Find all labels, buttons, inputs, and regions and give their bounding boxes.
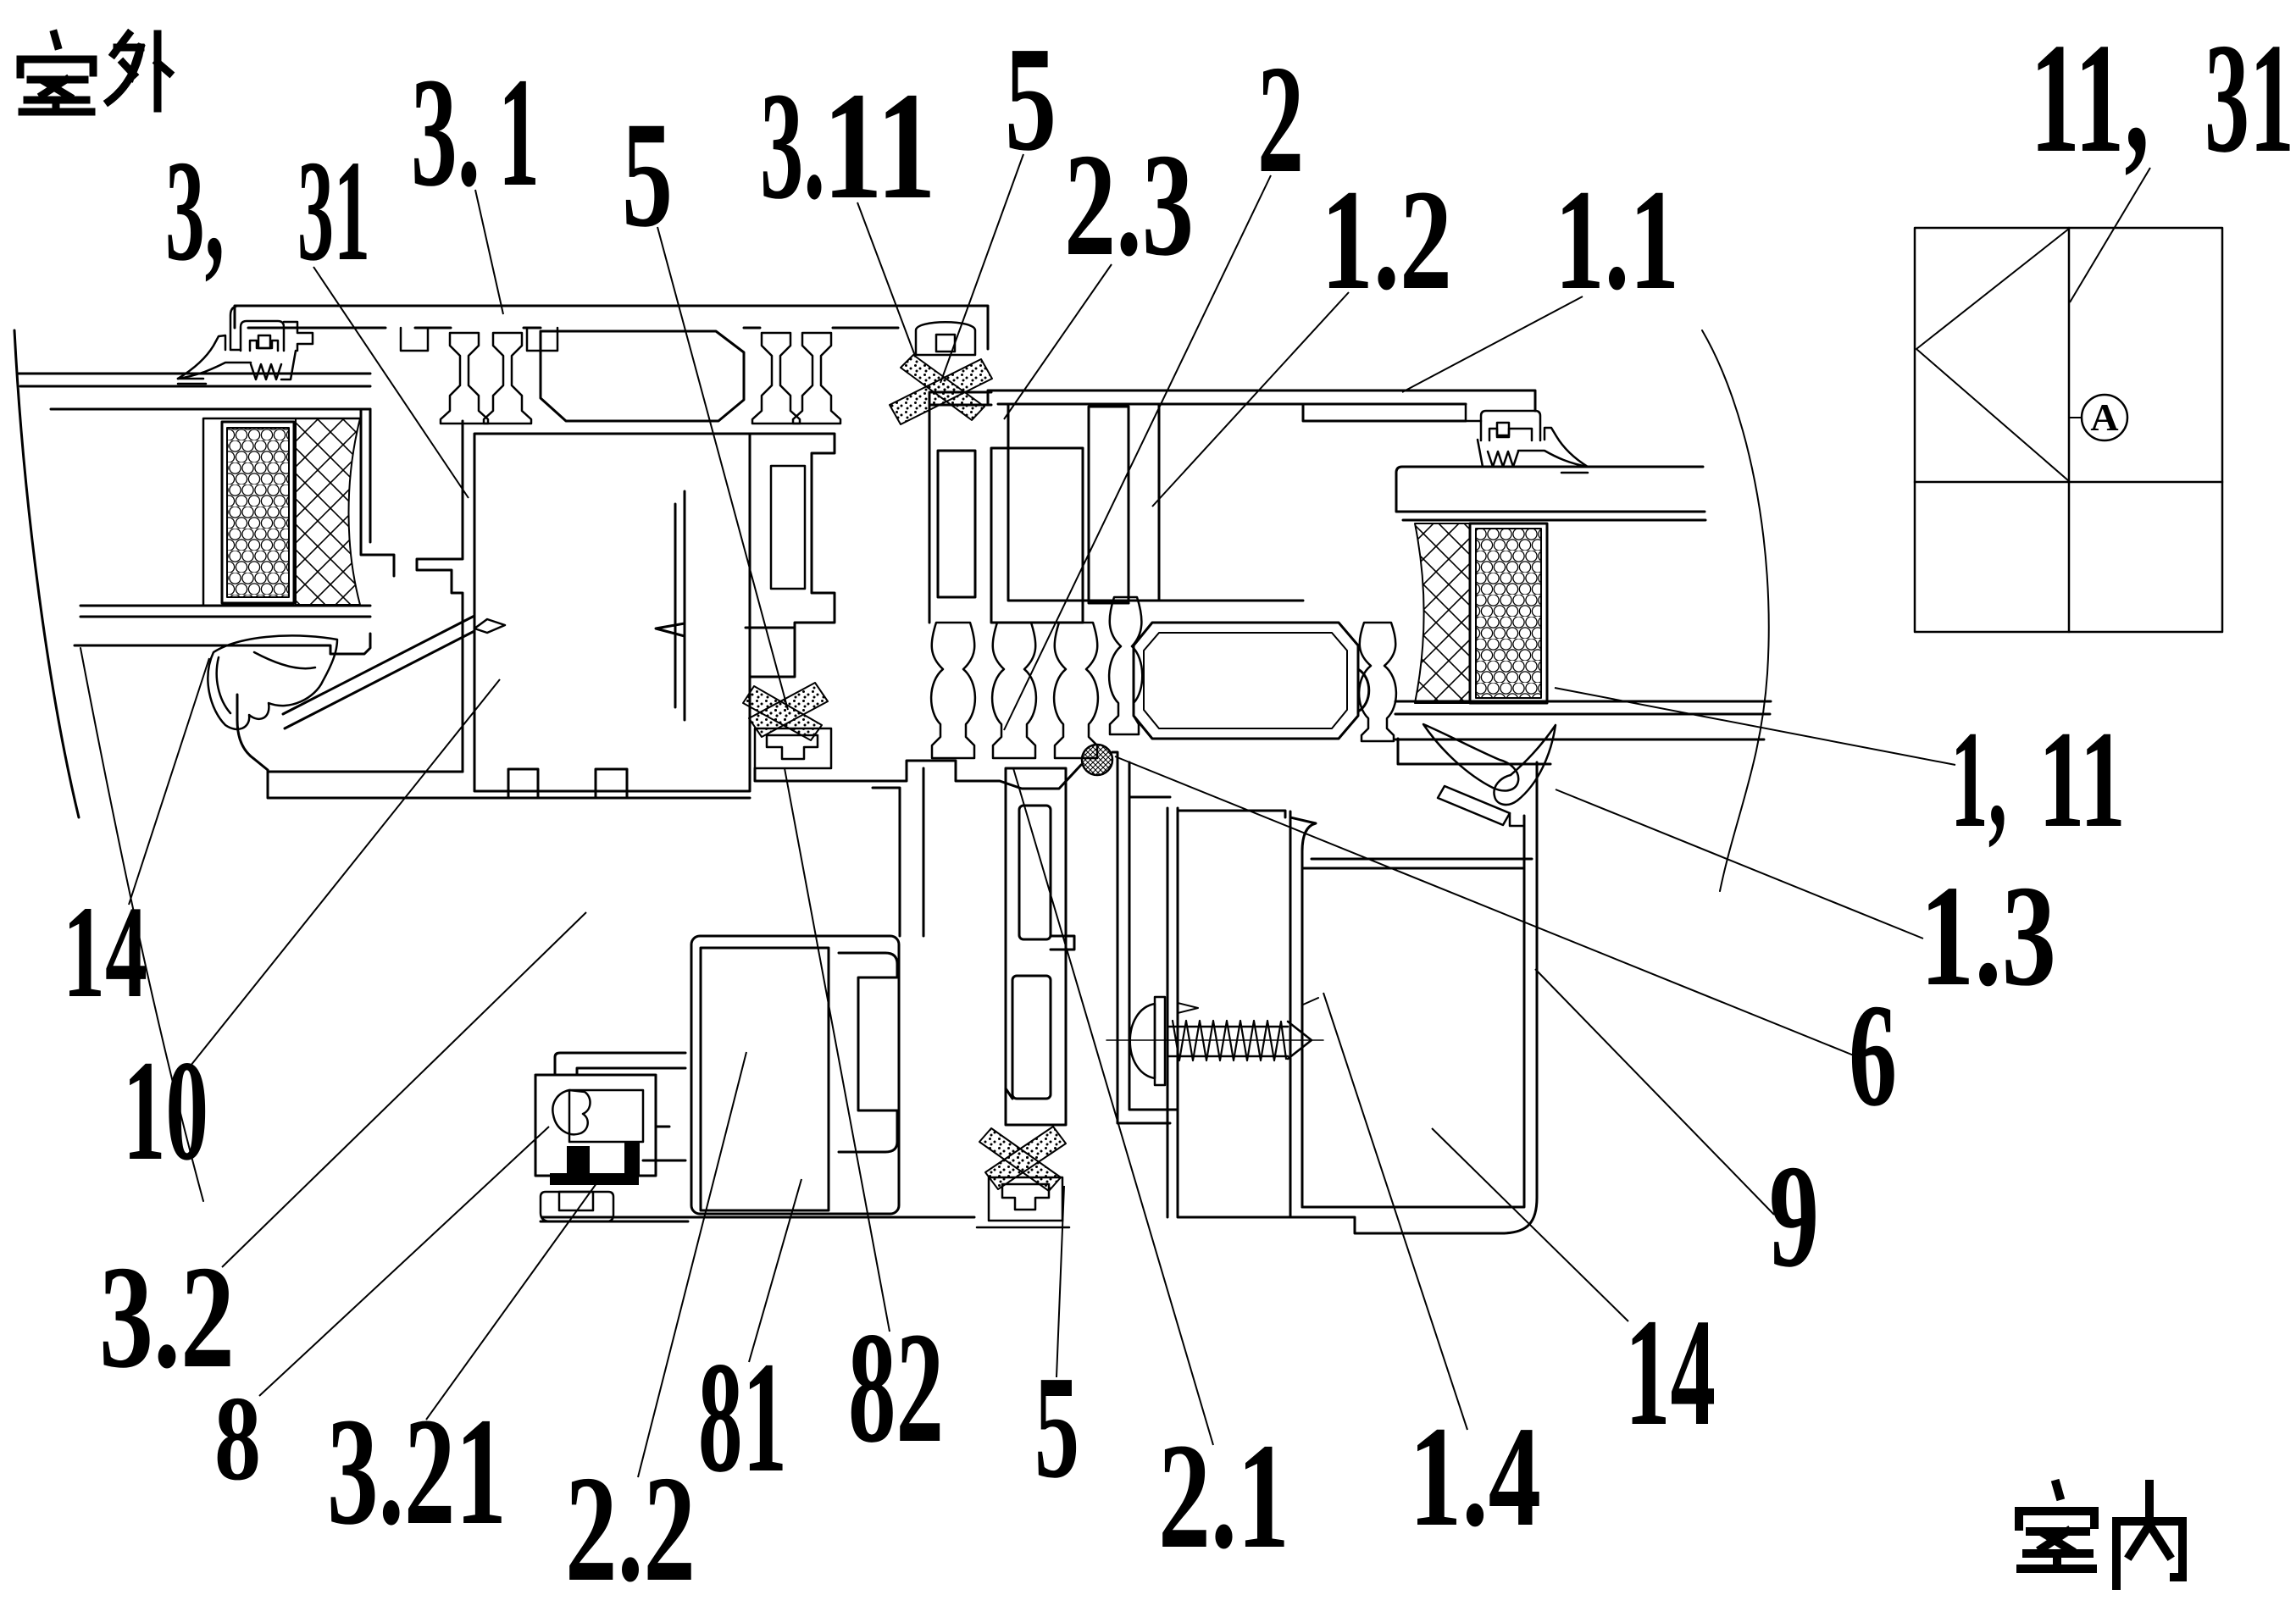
svg-text:1,: 1,: [1950, 703, 2007, 856]
svg-text:2: 2: [1257, 33, 1304, 205]
svg-text:1: 1: [498, 46, 540, 219]
svg-text:5: 5: [1005, 16, 1056, 182]
svg-text:14: 14: [63, 878, 147, 1025]
svg-text:A: A: [2090, 396, 2118, 439]
svg-text:3.21: 3.21: [327, 1387, 507, 1557]
svg-text:3,: 3,: [165, 130, 225, 291]
svg-text:11: 11: [2038, 703, 2126, 856]
svg-text:2.3: 2.3: [1064, 123, 1194, 286]
svg-text:3.: 3.: [760, 61, 825, 231]
svg-text:1.4: 1.4: [1409, 1397, 1541, 1556]
svg-text:14: 14: [1625, 1288, 1716, 1458]
svg-text:1.1: 1.1: [1555, 160, 1679, 319]
svg-text:2.1: 2.1: [1158, 1411, 1289, 1580]
svg-text:2.2: 2.2: [565, 1444, 696, 1606]
svg-text:3.: 3.: [411, 46, 480, 219]
svg-text:1.3: 1.3: [1920, 856, 2056, 1016]
svg-text:5: 5: [622, 90, 673, 258]
svg-text:82: 82: [848, 1299, 944, 1476]
svg-text:1.2: 1.2: [1321, 160, 1452, 319]
svg-text:9: 9: [1769, 1134, 1819, 1298]
svg-text:31: 31: [297, 130, 370, 291]
svg-text:11,: 11,: [2030, 11, 2149, 186]
svg-text:31: 31: [2204, 11, 2294, 186]
svg-text:81: 81: [698, 1328, 787, 1505]
svg-text:11: 11: [823, 61, 936, 231]
svg-text:8: 8: [214, 1371, 261, 1505]
svg-text:6: 6: [1849, 973, 1897, 1137]
